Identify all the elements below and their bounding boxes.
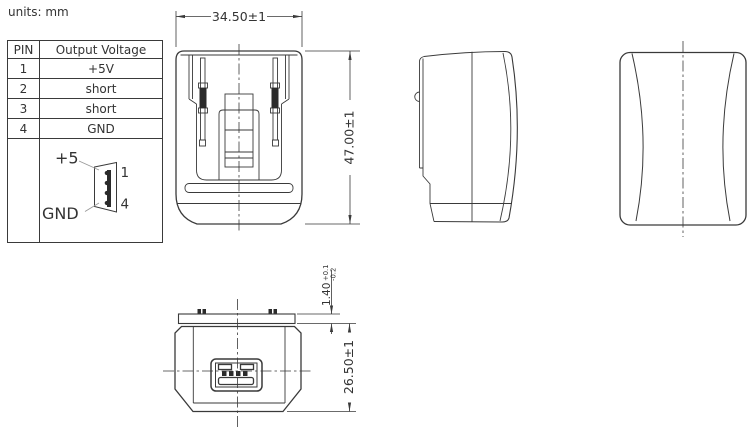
arrowhead-left [176, 15, 185, 18]
depth-dimension: 26.50±1 [287, 324, 356, 412]
ground-label: GND [42, 204, 79, 223]
arrowhead-up [348, 51, 351, 60]
flange-dimension-label: 1.40 [321, 283, 333, 306]
arrowhead-up [348, 324, 351, 333]
side-back-curve [500, 53, 511, 221]
technical-drawing-page: units: mm PIN Output Voltage 1 +5V 2 sho… [0, 0, 751, 431]
usb-tongue [219, 378, 254, 385]
height-dimension-label: 47.00±1 [342, 110, 357, 164]
arrowhead-down [348, 403, 351, 412]
usb-contacts [222, 371, 248, 376]
pivot-bump [415, 92, 420, 102]
adapter-drawing: 34.50±1 47.00±1 [0, 0, 751, 431]
depth-dimension-label: 26.50±1 [341, 340, 356, 394]
height-dimension: 47.00±1 [305, 51, 360, 224]
arrowhead-right [293, 15, 302, 18]
usb-port [211, 359, 262, 391]
arrowhead-down [348, 215, 351, 224]
wall-flange [179, 314, 296, 324]
width-dimension: 34.50±1 [176, 9, 302, 47]
width-dimension-label: 34.50±1 [212, 9, 266, 24]
plug-blade-right [271, 58, 280, 146]
connector-pinout-diagram: +5 GND 1 4 [42, 149, 129, 224]
plus-five-label: +5 [55, 149, 79, 168]
rear-view-drawing [620, 41, 746, 237]
flange-dimension: 1.40 +0.1 -0.2 [297, 264, 356, 334]
pin4-label: 4 [121, 197, 130, 213]
side-view-drawing [415, 52, 518, 223]
bottom-view-drawing [163, 299, 313, 429]
pin1-label: 1 [121, 165, 130, 181]
arrowhead-up [330, 324, 333, 333]
plug-blade-left [199, 58, 208, 146]
front-view-drawing [176, 44, 302, 233]
flange-tolerance-minus: -0.2 [330, 268, 338, 281]
leader-lines [79, 161, 99, 212]
